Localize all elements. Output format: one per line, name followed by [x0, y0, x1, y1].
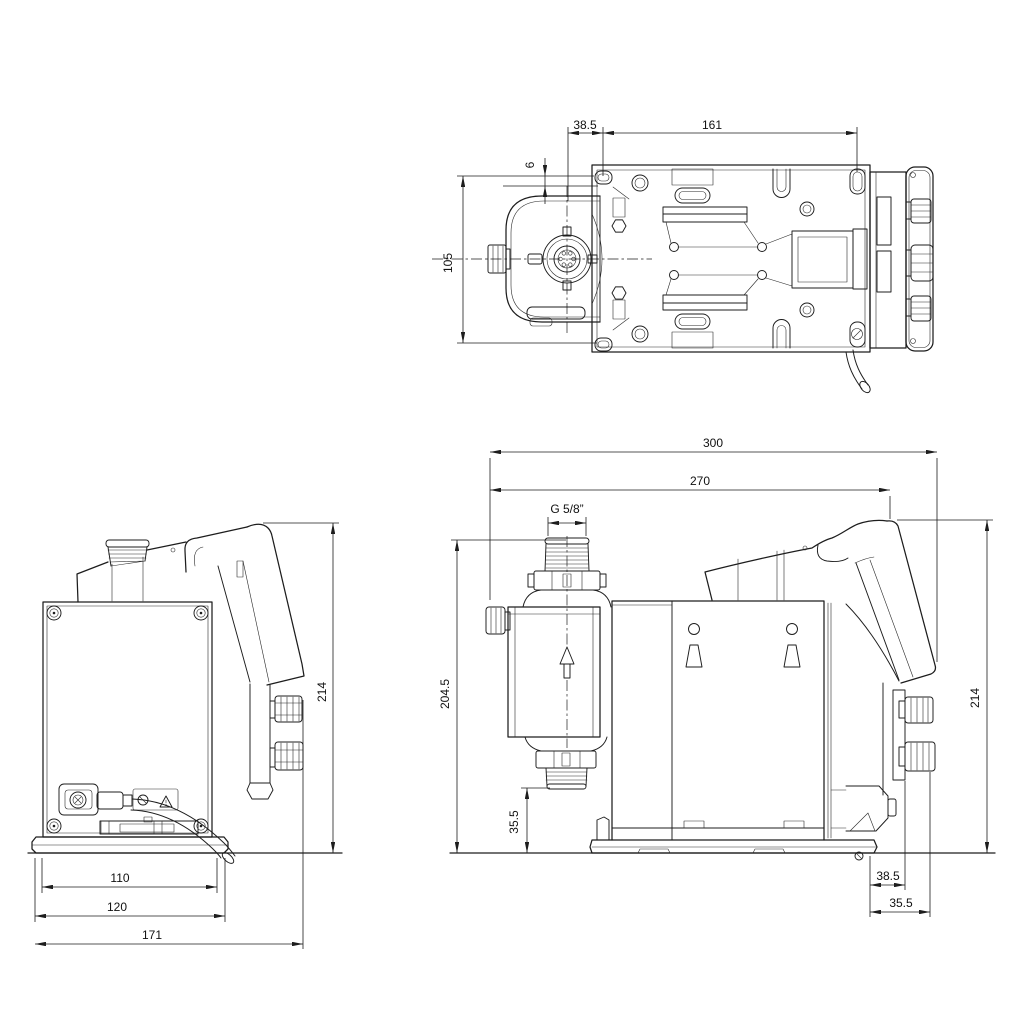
side-view: 300 270 G 5/8” 204.5 35.5 214 38.5 35.5: [438, 436, 995, 917]
baseplate: [592, 165, 870, 352]
wall-mount-keyhole: [784, 624, 800, 668]
dosing-head: [486, 536, 611, 789]
pump-body-side: [612, 601, 831, 840]
dim-label-connection-thread: G 5/8”: [550, 502, 583, 516]
control-unit-top: [846, 167, 933, 395]
rear-cable-gland: [831, 786, 896, 831]
dimensional-drawing-page: 38.5 161 6 105: [0, 0, 1024, 1024]
front-view-dimensions: 214 110 120 171: [35, 523, 339, 949]
connector-knob: [270, 696, 302, 722]
power-cable: [846, 350, 872, 395]
control-panel-side: [705, 520, 936, 831]
flow-direction-arrow: [560, 647, 574, 664]
grip-notch: [185, 527, 247, 572]
dim-label-overall-width: 171: [142, 928, 162, 942]
dim-label-overall-depth: 300: [703, 436, 723, 450]
cable-gland: [59, 784, 132, 815]
base-plate: [28, 837, 342, 853]
wall-mount-keyhole: [686, 624, 702, 668]
dim-label-head-offset: 38.5: [573, 118, 597, 132]
dim-label-height: 214: [968, 688, 982, 708]
corner-screw: [47, 606, 61, 620]
connector-knob: [270, 742, 303, 770]
connector-knob: [906, 199, 931, 223]
connector-knob: [899, 697, 933, 723]
front-view: 214 110 120 171: [28, 523, 342, 949]
dim-label-base-width: 120: [107, 900, 127, 914]
connector-knob: [899, 742, 935, 771]
dim-label-rear-offset-top: 38.5: [876, 869, 900, 883]
dim-label-base-inner-width: 110: [110, 871, 129, 885]
dim-label-rear-offset: 35.5: [889, 896, 913, 910]
dim-label-slot-offset: 6: [523, 161, 537, 168]
control-panel: [218, 524, 304, 799]
dim-label-body-depth: 270: [690, 474, 710, 488]
discharge-fitting: [106, 540, 149, 566]
bottom-union-nut: [536, 751, 596, 768]
bottom-thread-fitting: [546, 768, 587, 789]
dim-label-height: 214: [315, 682, 329, 702]
corner-screw: [194, 606, 208, 620]
dim-label-base-depth: 105: [441, 253, 455, 273]
dim-label-head-top-height: 204.5: [438, 679, 452, 709]
corner-screw: [47, 819, 61, 833]
grip-notch: [817, 545, 848, 562]
pump-dimensional-drawing: 38.5 161 6 105: [0, 0, 1024, 1024]
back-plate: [43, 602, 212, 837]
dim-label-mount-spacing: 161: [702, 118, 722, 132]
base-plate: [590, 817, 877, 860]
vent-knob: [486, 607, 510, 634]
side-view-dimensions: 300 270 G 5/8” 204.5 35.5 214 38.5 35.5: [438, 436, 993, 917]
top-housing: [77, 527, 247, 602]
pump-head-top: [432, 186, 652, 333]
top-view: 38.5 161 6 105: [432, 118, 933, 395]
valve-flange: [543, 227, 597, 290]
dim-label-fitting-clearance: 35.5: [507, 810, 521, 834]
connector-knob: [906, 245, 933, 281]
connector-knob: [906, 296, 931, 321]
top-view-dimensions: 38.5 161 6 105: [441, 118, 857, 343]
